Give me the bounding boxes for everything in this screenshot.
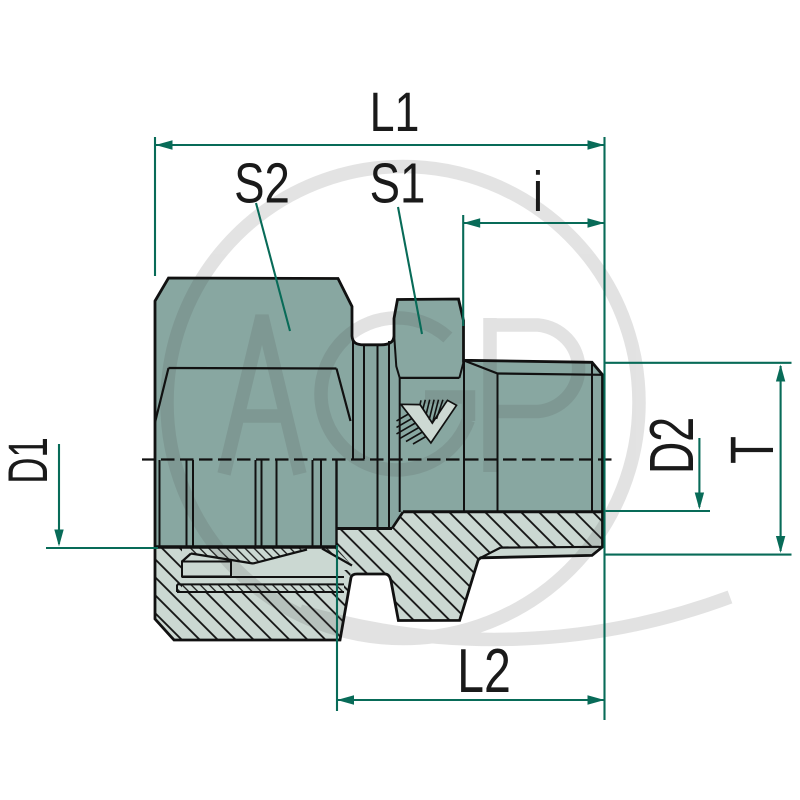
svg-text:S2: S2	[234, 151, 290, 215]
svg-text:D1: D1	[0, 437, 60, 484]
svg-text:D2: D2	[638, 417, 707, 474]
svg-text:i: i	[533, 159, 543, 223]
svg-text:L2: L2	[457, 636, 511, 705]
svg-text:L1: L1	[370, 80, 420, 143]
svg-text:S1: S1	[370, 151, 426, 215]
svg-text:T: T	[719, 436, 787, 464]
